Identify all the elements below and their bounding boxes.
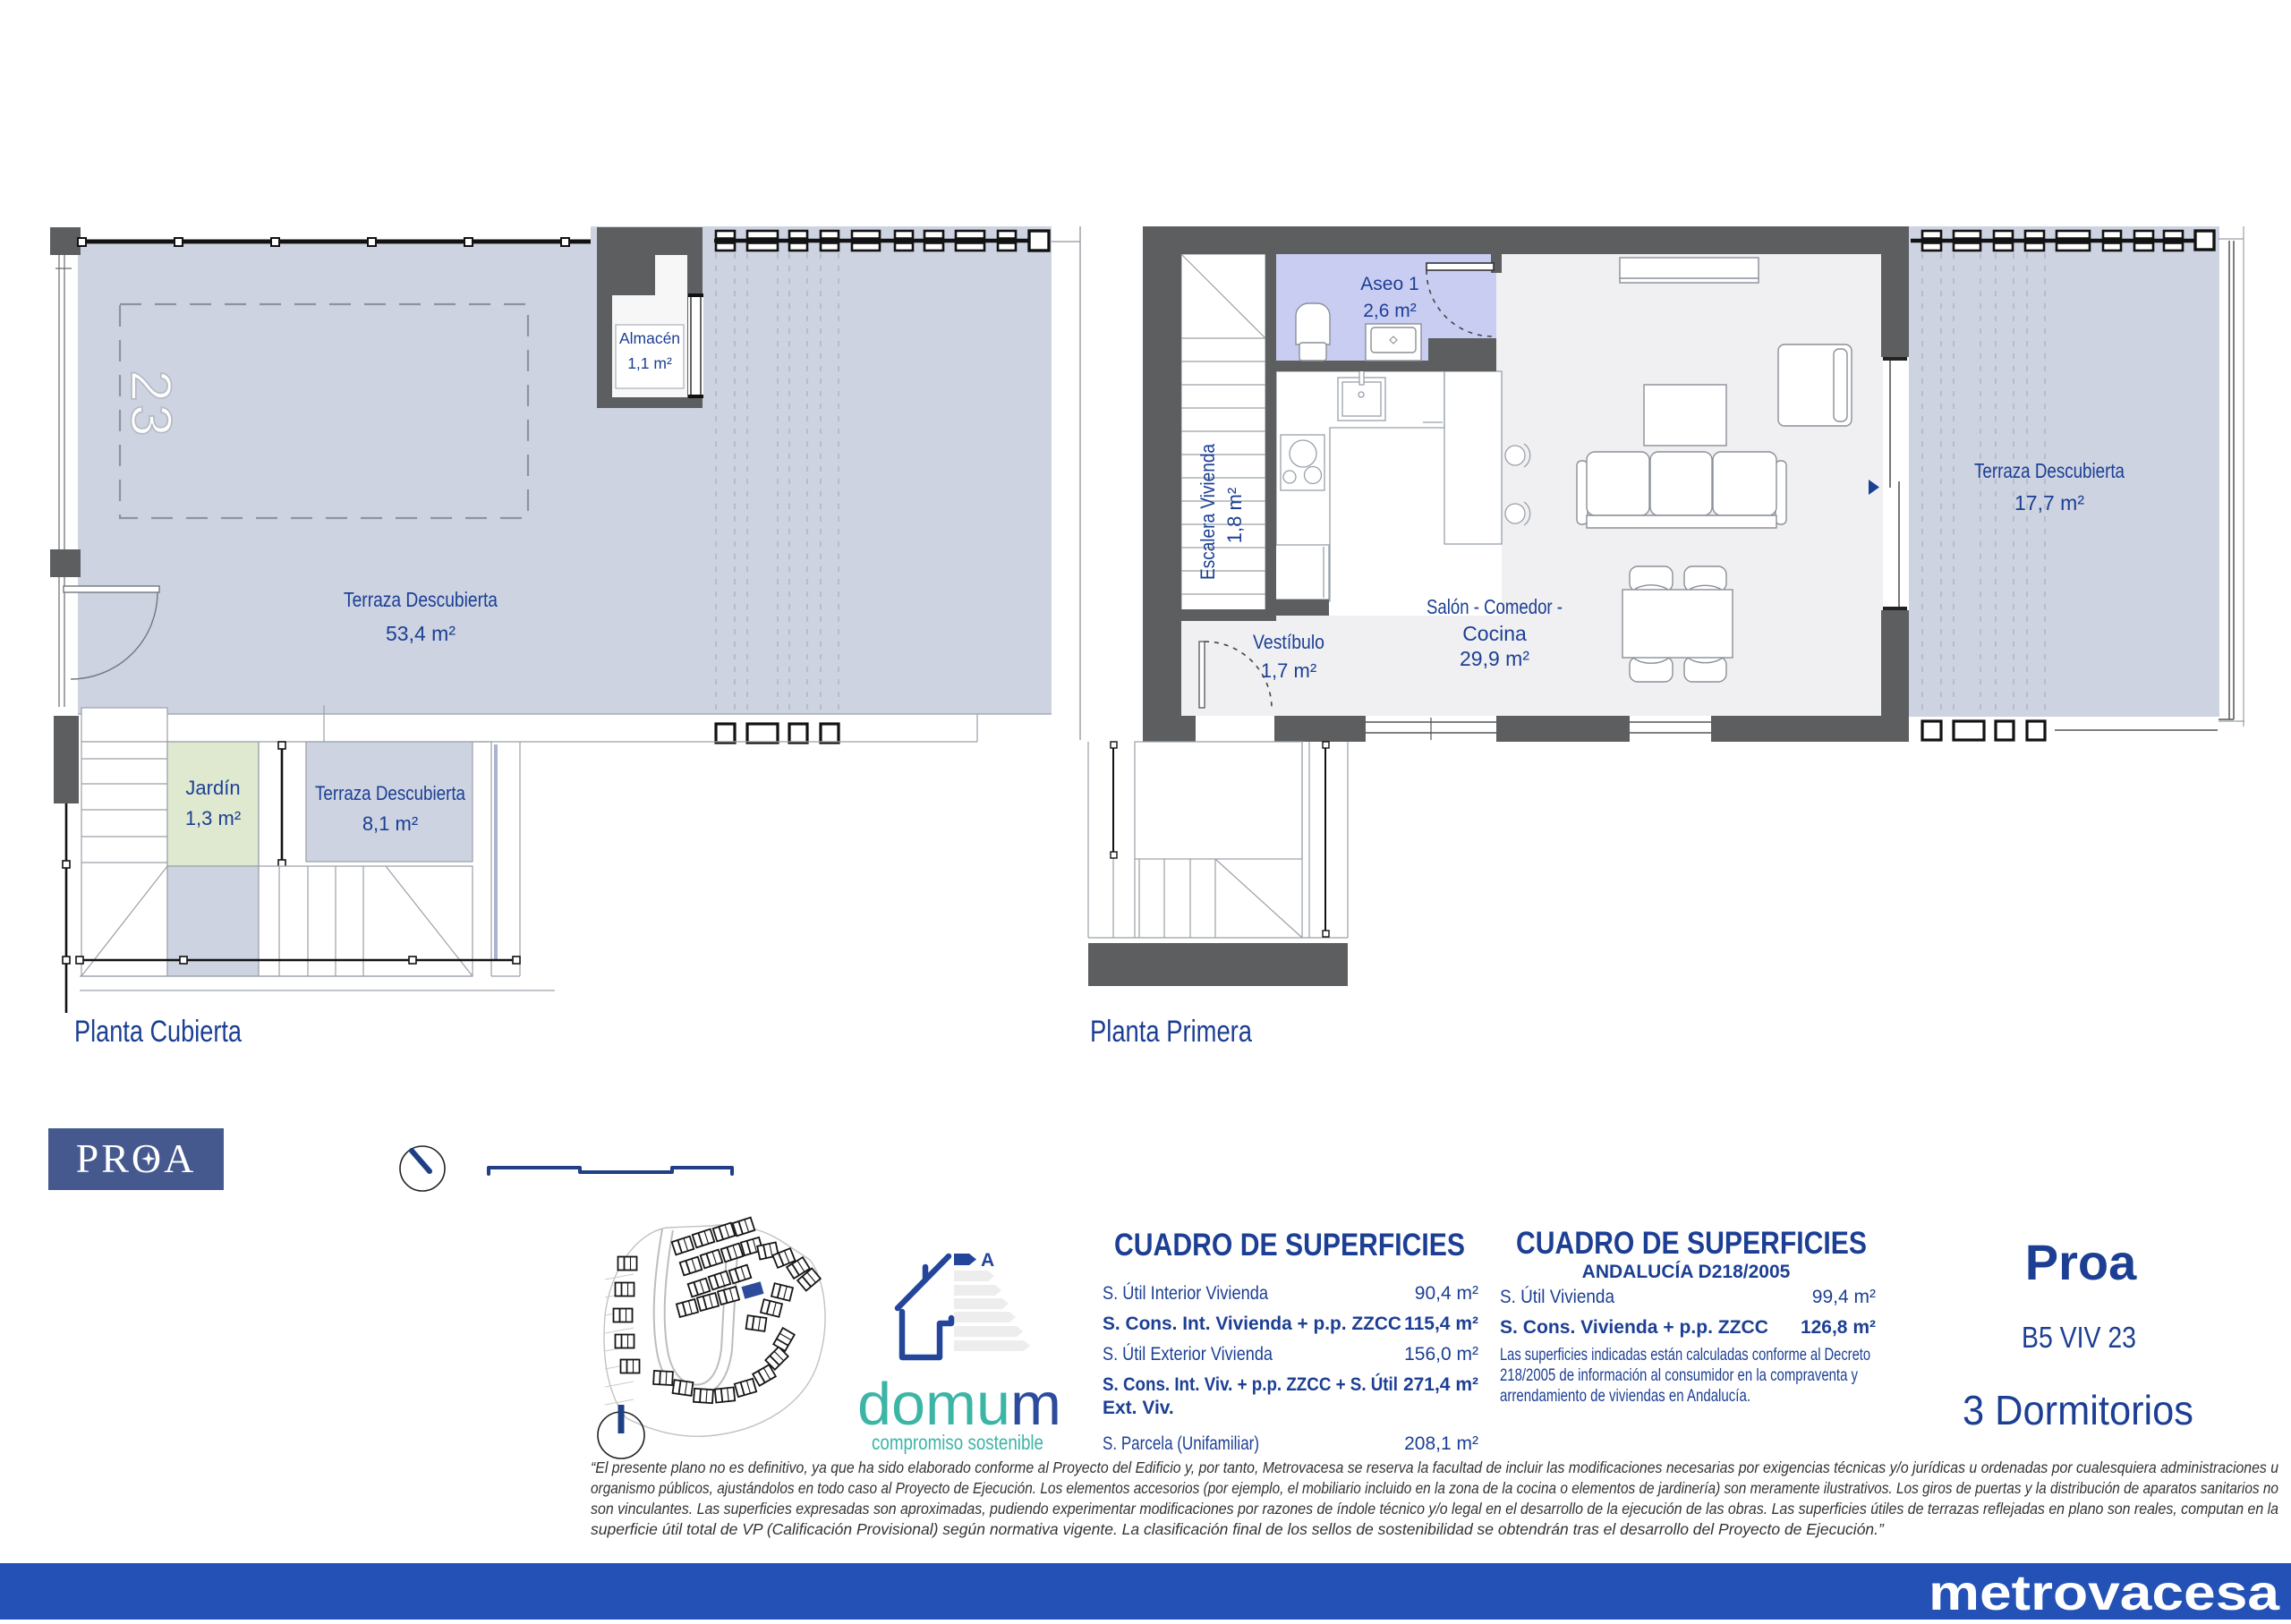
svg-text:Escalera Vivienda: Escalera Vivienda: [1197, 443, 1219, 580]
svg-text:S. Útil Interior Vivienda: S. Útil Interior Vivienda: [1103, 1283, 1268, 1304]
svg-text:Salón - Comedor -: Salón - Comedor -: [1427, 595, 1563, 618]
svg-text:arrendamiento de viviendas en: arrendamiento de viviendas en Andalucía.: [1500, 1386, 1750, 1406]
svg-text:Planta Primera: Planta Primera: [1090, 1015, 1252, 1049]
svg-text:156,0 m²: 156,0 m²: [1404, 1344, 1478, 1365]
svg-text:218/2005 de información al con: 218/2005 de información al consumidor en…: [1500, 1365, 1858, 1385]
svg-text:1,8 m²: 1,8 m²: [1223, 488, 1246, 543]
svg-text:271,4 m²: 271,4 m²: [1403, 1374, 1478, 1395]
svg-text:Planta Cubierta: Planta Cubierta: [74, 1015, 242, 1049]
svg-text:Aseo 1: Aseo 1: [1360, 274, 1418, 294]
svg-text:domum: domum: [857, 1371, 1061, 1438]
svg-text:PROA: PROA: [76, 1135, 197, 1181]
svg-text:metrovacesa: metrovacesa: [1929, 1564, 2280, 1620]
svg-text:Vestíbulo: Vestíbulo: [1253, 631, 1324, 653]
svg-text:17,7 m²: 17,7 m²: [2014, 491, 2084, 514]
svg-text:organismo públicos, ajustándol: organismo públicos, ajustándolos en todo…: [591, 1479, 2278, 1497]
svg-text:CUADRO DE SUPERFICIES: CUADRO DE SUPERFICIES: [1114, 1228, 1465, 1263]
svg-text:S. Cons. Vivienda + p.p. ZZCC: S. Cons. Vivienda + p.p. ZZCC: [1500, 1317, 1768, 1338]
svg-text:Proa: Proa: [2025, 1234, 2137, 1290]
svg-text:Las superficies indicadas está: Las superficies indicadas están calculad…: [1500, 1345, 1870, 1365]
svg-text:ANDALUCÍA D218/2005: ANDALUCÍA D218/2005: [1582, 1262, 1791, 1282]
svg-text:8,1 m²: 8,1 m²: [362, 812, 418, 835]
svg-text:53,4 m²: 53,4 m²: [386, 622, 456, 645]
svg-text:3 Dormitorios: 3 Dormitorios: [1963, 1387, 2193, 1433]
svg-text:CUADRO DE SUPERFICIES: CUADRO DE SUPERFICIES: [1516, 1226, 1867, 1261]
svg-text:Terraza Descubierta: Terraza Descubierta: [315, 782, 466, 804]
svg-text:99,4 m²: 99,4 m²: [1812, 1287, 1876, 1307]
svg-text:90,4 m²: 90,4 m²: [1415, 1283, 1478, 1304]
svg-text:126,8 m²: 126,8 m²: [1801, 1317, 1876, 1338]
svg-text:1,7 m²: 1,7 m²: [1261, 659, 1316, 682]
svg-text:23: 23: [119, 370, 183, 438]
svg-text:A: A: [981, 1250, 994, 1271]
svg-text:1,3 m²: 1,3 m²: [185, 807, 241, 829]
svg-text:Cocina: Cocina: [1462, 622, 1527, 645]
svg-text:Terraza Descubierta: Terraza Descubierta: [344, 588, 498, 611]
svg-text:29,9 m²: 29,9 m²: [1460, 647, 1529, 670]
svg-text:compromiso sostenible: compromiso sostenible: [872, 1431, 1043, 1454]
svg-text:B5 VIV 23: B5 VIV 23: [2022, 1321, 2136, 1354]
svg-text:Jardín: Jardín: [185, 777, 240, 799]
svg-text:S. Útil Exterior Vivienda: S. Útil Exterior Vivienda: [1103, 1344, 1273, 1365]
svg-text:“El presente plano no es defin: “El presente plano no es definitivo, ya …: [591, 1458, 2278, 1476]
svg-text:208,1 m²: 208,1 m²: [1404, 1433, 1478, 1454]
svg-text:S. Cons. Int. Viv. + p.p. ZZCC: S. Cons. Int. Viv. + p.p. ZZCC + S. Útil: [1103, 1373, 1398, 1395]
svg-text:S. Cons. Int. Vivienda + p.p.: S. Cons. Int. Vivienda + p.p. ZZCC: [1103, 1314, 1401, 1334]
svg-text:Ext. Viv.: Ext. Viv.: [1103, 1398, 1174, 1418]
svg-text:S. Útil Vivienda: S. Útil Vivienda: [1500, 1287, 1614, 1307]
svg-text:2,6 m²: 2,6 m²: [1363, 301, 1417, 321]
svg-text:son vinculantes. Las superfici: son vinculantes. Las superficies expresa…: [591, 1500, 2278, 1518]
svg-text:superficie útil total de VP (C: superficie útil total de VP (Calificació…: [591, 1520, 1885, 1538]
svg-text:Almacén: Almacén: [619, 329, 680, 347]
svg-text:115,4 m²: 115,4 m²: [1404, 1314, 1478, 1334]
svg-text:1,1 m²: 1,1 m²: [627, 354, 672, 372]
svg-text:Terraza Descubierta: Terraza Descubierta: [1974, 459, 2125, 482]
svg-text:S. Parcela (Unifamiliar): S. Parcela (Unifamiliar): [1103, 1433, 1259, 1454]
